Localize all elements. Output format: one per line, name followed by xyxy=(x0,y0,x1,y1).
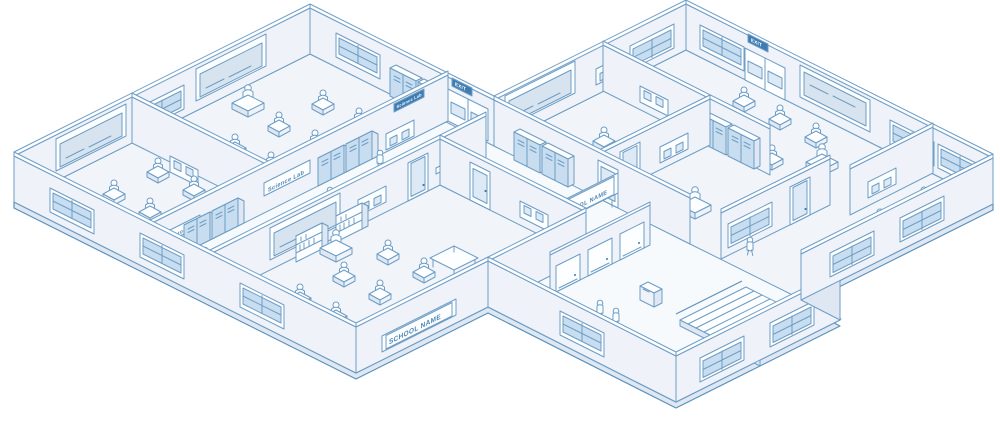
school-floorplan-illustration: EXIT EXIT xyxy=(0,0,1000,423)
isometric-school-svg: EXIT EXIT xyxy=(0,0,1000,423)
